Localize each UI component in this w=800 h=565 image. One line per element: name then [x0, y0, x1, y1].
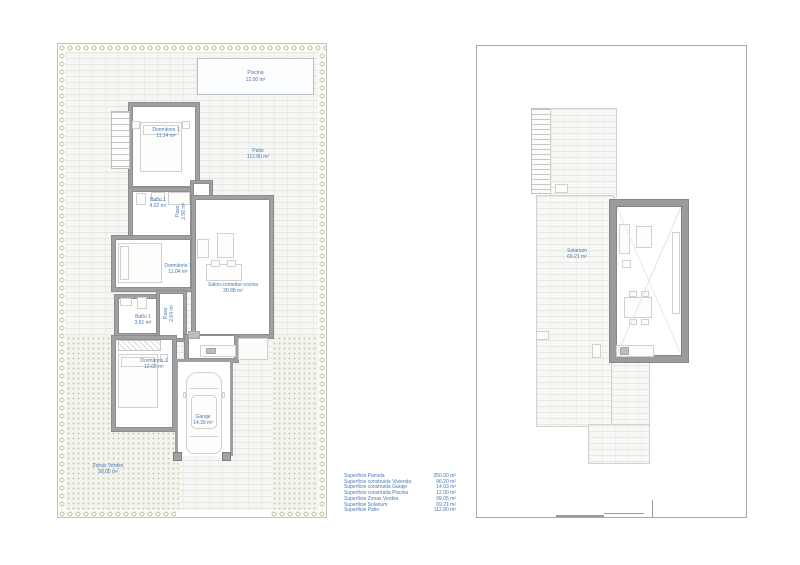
- legend-label: Superficie Patio: [344, 508, 379, 514]
- green-zone-right: [272, 336, 318, 510]
- solarium-tiles-side: [611, 358, 650, 427]
- room-area: 2.64 m²: [169, 298, 175, 328]
- room-label-paso-top: Paso 2.56 m²: [175, 196, 188, 226]
- room-label-paso-bottom: Paso 2.64 m²: [163, 298, 176, 328]
- car-mirror-icon: [183, 392, 186, 398]
- kitchen-sink-icon: [206, 348, 216, 354]
- green-zone-label: Zonas Verdes 99.05 m²: [84, 463, 132, 476]
- pool-label: Piscina 12.00 m²: [246, 70, 266, 83]
- hedge-border-bottom-left: [58, 510, 176, 517]
- hedge-border-bottom-right: [270, 510, 326, 517]
- room-label-salon: Salon-comedor-cocina 30.88 m²: [203, 282, 263, 295]
- room-area: 2.56 m²: [181, 196, 187, 226]
- room-area: 11.14 m²: [141, 133, 191, 139]
- stove-icon: [188, 331, 200, 339]
- room-label-bano-bottom: Baño 1 3.91 m²: [118, 314, 168, 327]
- room-label-garaje: Garaje 14.39 m²: [178, 414, 228, 427]
- hedge-border-top: [58, 44, 326, 52]
- floorplan-sheet: Piscina 12.00 m² Do: [0, 0, 800, 565]
- room-area: 3.91 m²: [118, 320, 168, 326]
- hedge-border-left: [58, 52, 66, 511]
- roof-slope-lines: [617, 207, 681, 355]
- solarium-tiles-main: [536, 195, 614, 427]
- area-value: 99.05 m²: [84, 469, 132, 475]
- room-area: 11.04 m²: [153, 269, 203, 275]
- solarium-tiles-step: [588, 424, 650, 464]
- roof-vent-icon: [536, 331, 549, 340]
- hedge-border-right: [318, 52, 326, 511]
- garage-post-right: [222, 452, 231, 461]
- garage-post-left: [173, 452, 182, 461]
- roof-vent-icon: [555, 184, 568, 193]
- legend-value: 112.80 m²: [434, 508, 456, 514]
- area-value: 112.80 m²: [232, 154, 284, 160]
- entrance-porch: [238, 338, 268, 360]
- pool-area: 12.00 m²: [246, 77, 266, 83]
- surface-legend: Superficie Parcela 350.00 m² Superficie …: [344, 474, 456, 514]
- legend-row: Superficie Patio 112.80 m²: [344, 508, 456, 514]
- pool: Piscina 12.00 m²: [197, 58, 314, 95]
- wardrobe-icon: [118, 340, 161, 351]
- room-label-dormitorio-bottom: Dormitorio 1 12.03 m²: [129, 358, 179, 371]
- car-mirror-icon: [222, 392, 225, 398]
- car-windshield-icon: [190, 388, 218, 389]
- solarium-label: Solarium 69.21 m²: [552, 248, 602, 261]
- patio-label: Patio 112.80 m²: [232, 148, 284, 161]
- room-area: 30.88 m²: [203, 288, 263, 294]
- room-label-dormitorio-mid: Dormitorio 1 11.04 m²: [153, 263, 203, 276]
- room-label-dormitorio-top: Dormitorio 1 11.14 m²: [141, 127, 191, 140]
- nightstand-icon: [132, 121, 140, 129]
- roof-stairs-icon: [531, 108, 551, 194]
- entrance-mark: [556, 515, 604, 517]
- roof-vent-icon: [592, 344, 601, 358]
- room-area: 12.03 m²: [129, 364, 179, 370]
- entrance-mark: [604, 513, 644, 514]
- dining-chair-icon: [227, 260, 236, 267]
- room-area: 14.39 m²: [178, 420, 228, 426]
- car-rearwindow-icon: [190, 436, 218, 437]
- dining-chair-icon: [211, 260, 220, 267]
- armchair-icon: [197, 239, 209, 258]
- pillow-icon: [120, 246, 129, 280]
- toilet-icon: [137, 297, 147, 309]
- pool-name: Piscina: [246, 70, 266, 76]
- area-value: 69.21 m²: [552, 254, 602, 260]
- stairs-icon: [111, 111, 130, 169]
- boundary-tick: [652, 500, 653, 518]
- sofa-icon: [217, 233, 234, 258]
- sink-icon: [120, 298, 132, 306]
